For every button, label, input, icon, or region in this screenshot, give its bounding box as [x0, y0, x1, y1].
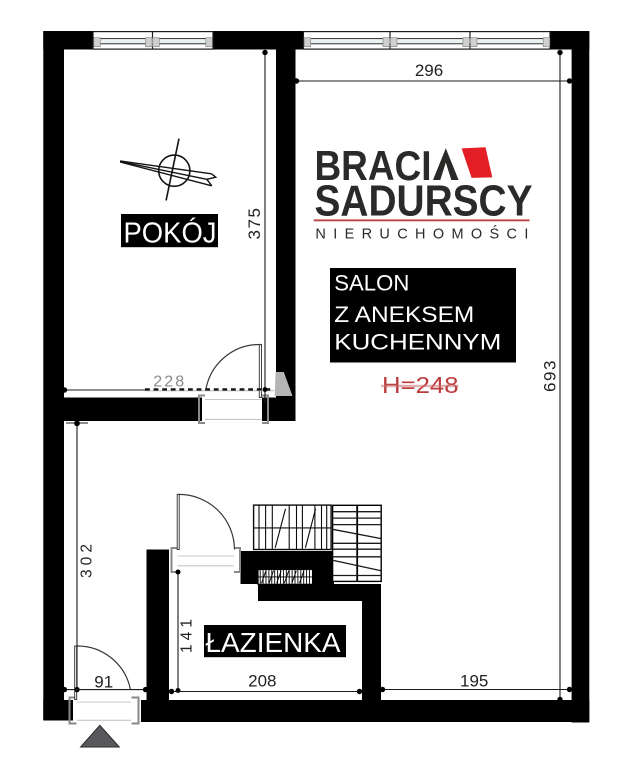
- svg-text:693: 693: [540, 361, 559, 393]
- svg-text:228: 228: [153, 373, 184, 390]
- svg-text:195: 195: [460, 672, 488, 691]
- svg-text:ŁAZIENKA: ŁAZIENKA: [206, 627, 341, 658]
- svg-text:SALON: SALON: [334, 270, 409, 295]
- svg-text:KUCHENNYM: KUCHENNYM: [334, 329, 501, 354]
- svg-text:Z ANEKSEM: Z ANEKSEM: [334, 302, 474, 327]
- svg-text:91: 91: [94, 673, 113, 692]
- svg-text:SADURSCY: SADURSCY: [315, 176, 533, 225]
- svg-text:296: 296: [415, 61, 443, 80]
- svg-text:375: 375: [245, 208, 264, 240]
- svg-text:NIERUCHOMOŚCI: NIERUCHOMOŚCI: [315, 225, 528, 243]
- svg-text:302: 302: [79, 544, 96, 578]
- svg-text:POKÓJ: POKÓJ: [124, 217, 217, 249]
- svg-text:208: 208: [248, 671, 276, 690]
- svg-text:141: 141: [179, 619, 196, 653]
